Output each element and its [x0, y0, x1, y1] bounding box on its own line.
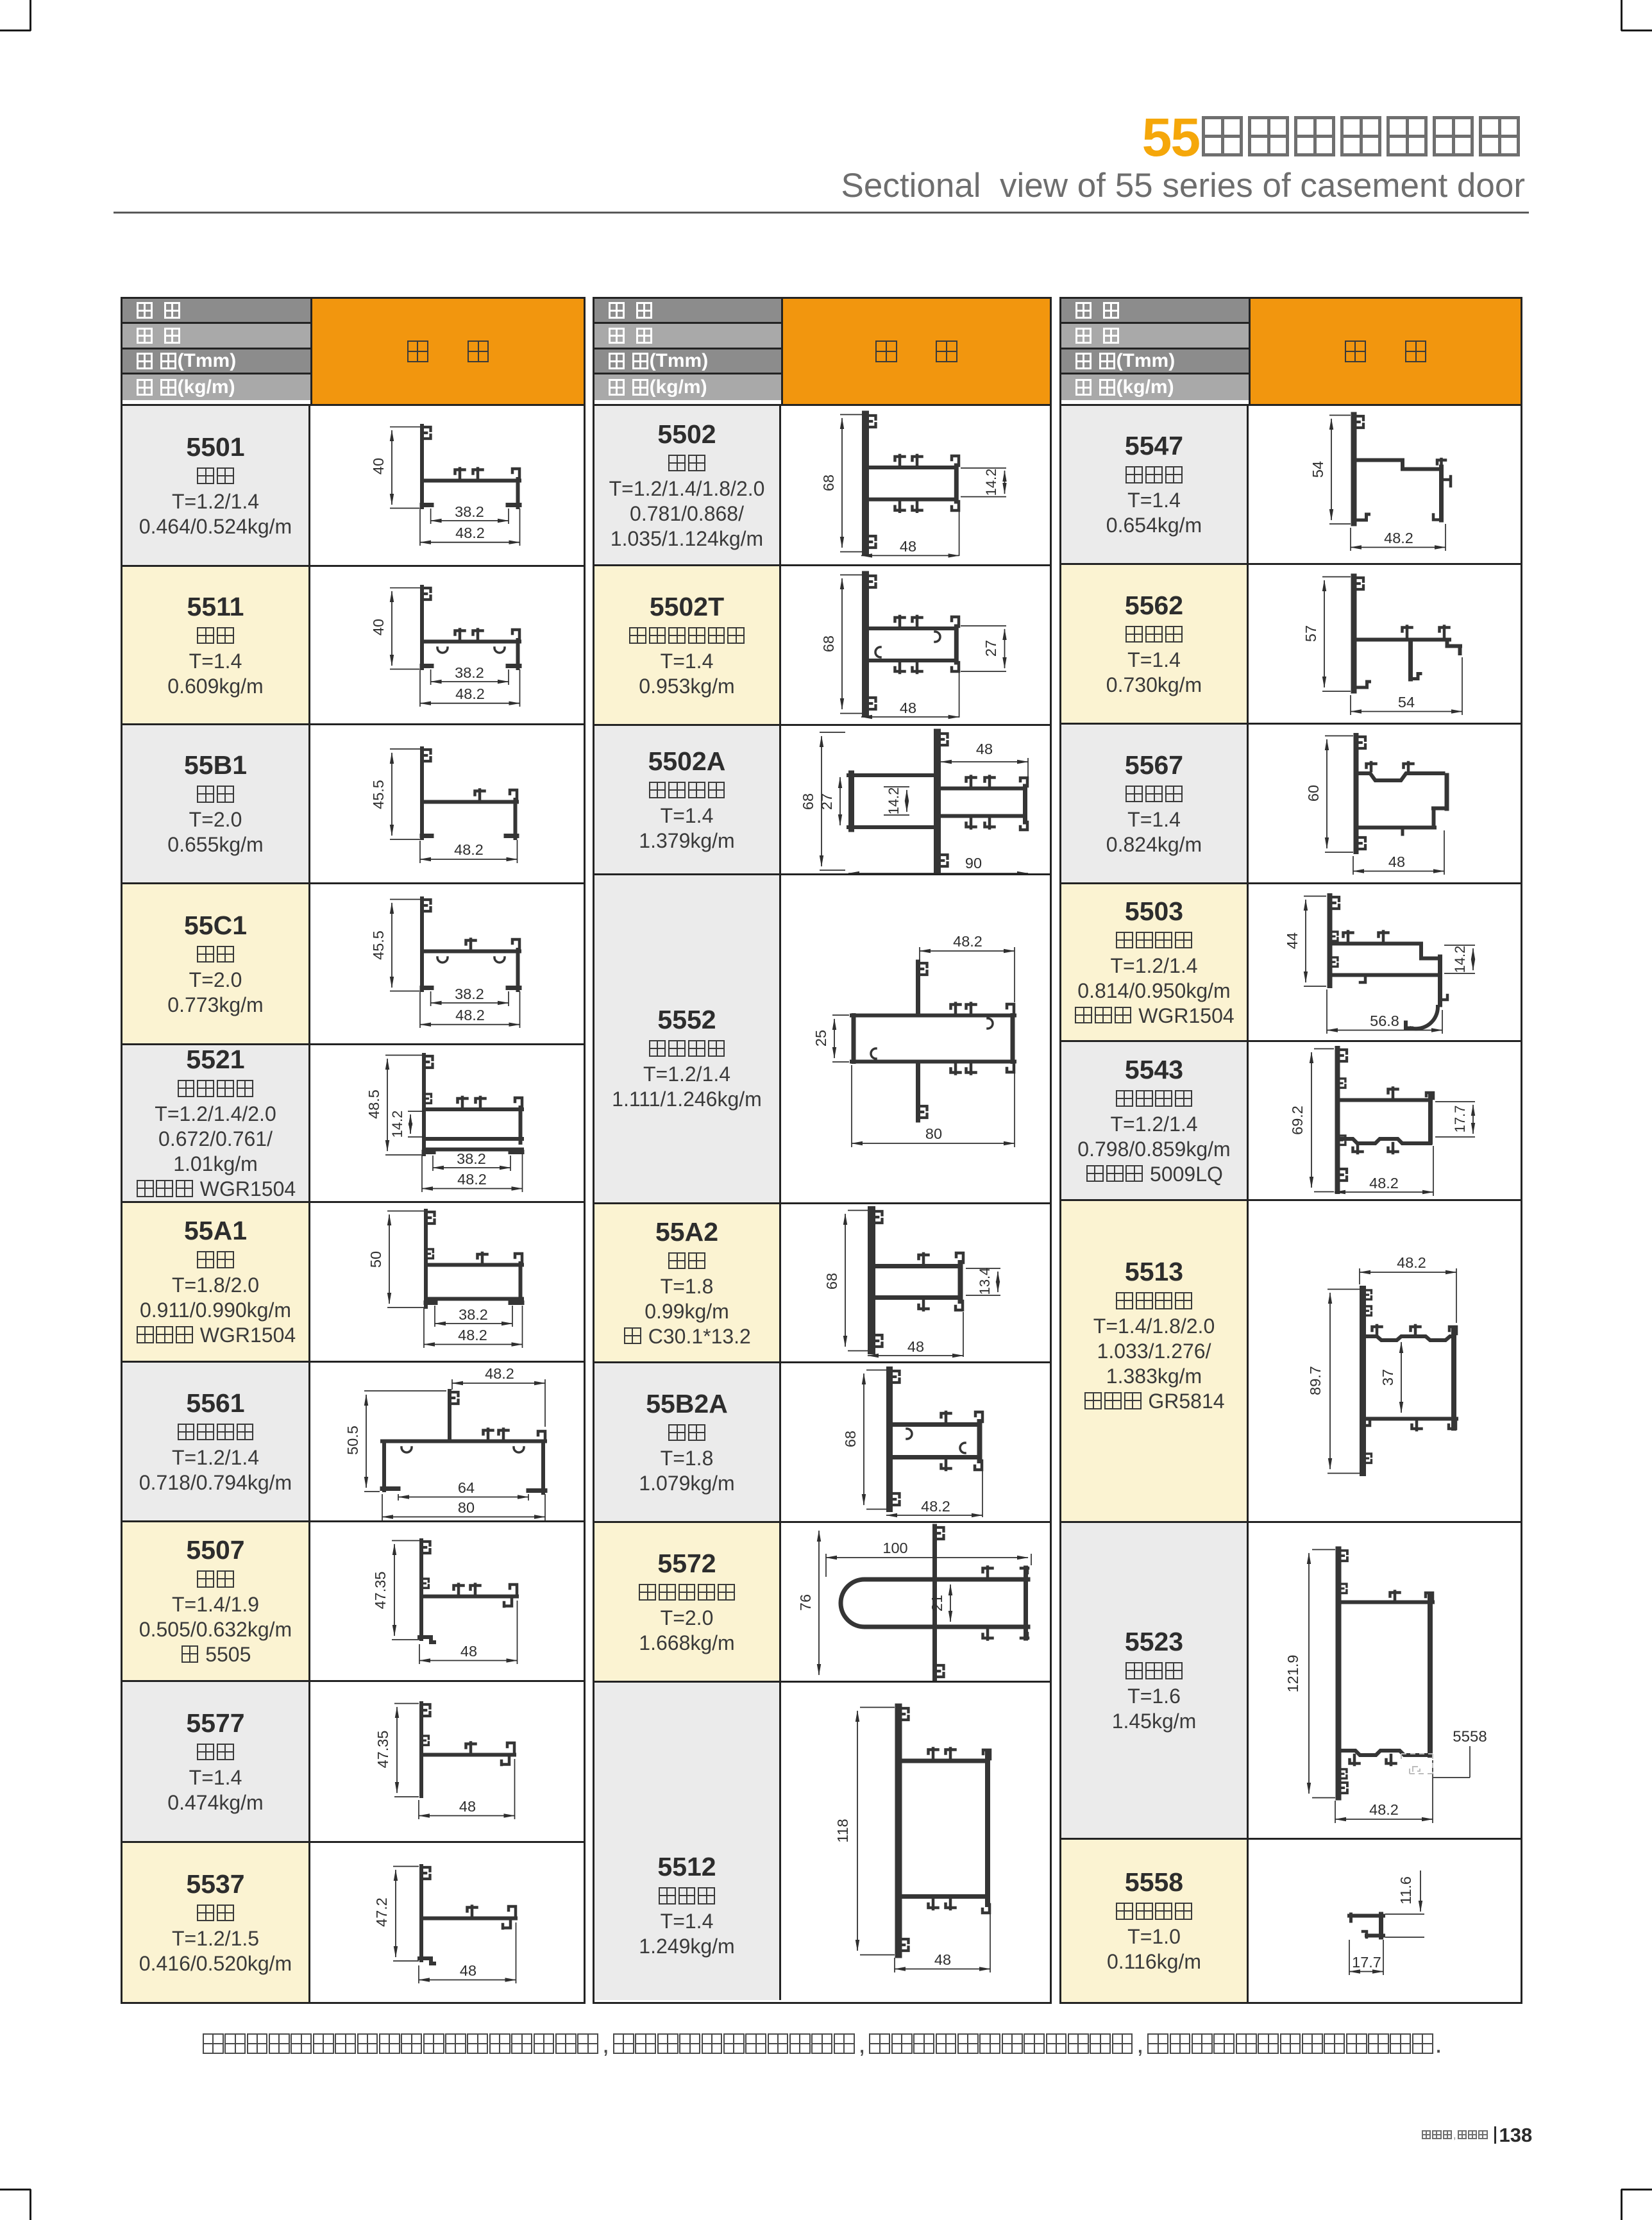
svg-text:47.35: 47.35 [375, 1731, 391, 1769]
svg-text:14.2: 14.2 [389, 1111, 405, 1138]
svg-text:48: 48 [460, 1962, 476, 1979]
svg-text:48.2: 48.2 [1369, 1801, 1399, 1818]
svg-text:100: 100 [882, 1540, 907, 1556]
svg-text:25: 25 [813, 1030, 829, 1047]
svg-text:40: 40 [370, 619, 387, 635]
svg-text:48.2: 48.2 [457, 1171, 487, 1188]
svg-text:48: 48 [907, 1338, 924, 1355]
svg-text:48: 48 [459, 1798, 476, 1815]
svg-text:48.2: 48.2 [454, 841, 484, 858]
svg-text:89.7: 89.7 [1307, 1366, 1324, 1395]
svg-text:68: 68 [800, 793, 816, 810]
svg-text:118: 118 [834, 1819, 851, 1842]
svg-text:38.2: 38.2 [457, 1150, 486, 1167]
svg-text:48: 48 [976, 741, 993, 757]
svg-text:80: 80 [925, 1125, 942, 1142]
svg-text:48: 48 [1388, 854, 1405, 870]
svg-text:80: 80 [458, 1499, 475, 1516]
svg-text:54: 54 [1398, 694, 1415, 711]
svg-text:14.2: 14.2 [983, 469, 999, 496]
svg-text:90: 90 [965, 855, 982, 871]
svg-text:21: 21 [929, 1595, 945, 1611]
svg-text:37: 37 [1379, 1369, 1396, 1386]
svg-text:14.2: 14.2 [1452, 946, 1468, 973]
svg-text:48.5: 48.5 [366, 1089, 382, 1119]
svg-text:44: 44 [1284, 932, 1301, 949]
svg-text:5558: 5558 [1453, 1728, 1487, 1745]
svg-text:48.2: 48.2 [455, 1007, 485, 1023]
svg-text:38.2: 38.2 [455, 664, 484, 681]
svg-text:48: 48 [934, 1951, 951, 1968]
svg-text:50: 50 [367, 1251, 384, 1268]
svg-text:68: 68 [820, 635, 837, 652]
svg-text:48.2: 48.2 [1384, 530, 1413, 546]
svg-text:48.2: 48.2 [921, 1498, 950, 1515]
svg-text:48.2: 48.2 [1369, 1175, 1399, 1191]
svg-text:48.2: 48.2 [1397, 1254, 1426, 1271]
svg-text:17.7: 17.7 [1352, 1954, 1381, 1971]
svg-text:27: 27 [982, 640, 999, 657]
svg-text:50.5: 50.5 [344, 1425, 361, 1455]
svg-text:38.2: 38.2 [459, 1306, 488, 1323]
svg-text:48.2: 48.2 [485, 1365, 514, 1382]
svg-text:64: 64 [458, 1479, 475, 1496]
svg-text:54: 54 [1310, 461, 1326, 478]
svg-text:47.35: 47.35 [372, 1572, 389, 1610]
svg-text:76: 76 [797, 1594, 814, 1611]
svg-text:40: 40 [370, 458, 387, 475]
svg-text:48: 48 [900, 538, 916, 555]
svg-text:47.2: 47.2 [373, 1897, 390, 1927]
svg-text:68: 68 [823, 1273, 840, 1290]
svg-text:48.2: 48.2 [455, 525, 485, 541]
svg-text:57: 57 [1302, 625, 1319, 642]
svg-text:11.6: 11.6 [1397, 1876, 1414, 1905]
svg-text:14.2: 14.2 [886, 787, 902, 815]
svg-text:38.2: 38.2 [455, 986, 484, 1002]
svg-text:48: 48 [460, 1643, 477, 1660]
svg-text:17.7: 17.7 [1452, 1106, 1468, 1133]
svg-text:68: 68 [820, 475, 837, 491]
svg-text:60: 60 [1305, 785, 1322, 802]
svg-text:48.2: 48.2 [953, 933, 982, 950]
svg-text:38.2: 38.2 [455, 503, 484, 520]
svg-text:48.2: 48.2 [458, 1327, 487, 1343]
svg-text:68: 68 [842, 1431, 859, 1447]
svg-text:13.4: 13.4 [977, 1268, 993, 1295]
svg-text:48: 48 [900, 700, 916, 716]
svg-text:69.2: 69.2 [1289, 1106, 1306, 1135]
svg-text:56.8: 56.8 [1370, 1013, 1399, 1029]
svg-text:45.5: 45.5 [370, 930, 387, 960]
svg-text:45.5: 45.5 [370, 780, 387, 809]
svg-text:48.2: 48.2 [455, 685, 485, 702]
svg-text:27: 27 [818, 793, 835, 810]
svg-text:121.9: 121.9 [1285, 1655, 1301, 1693]
